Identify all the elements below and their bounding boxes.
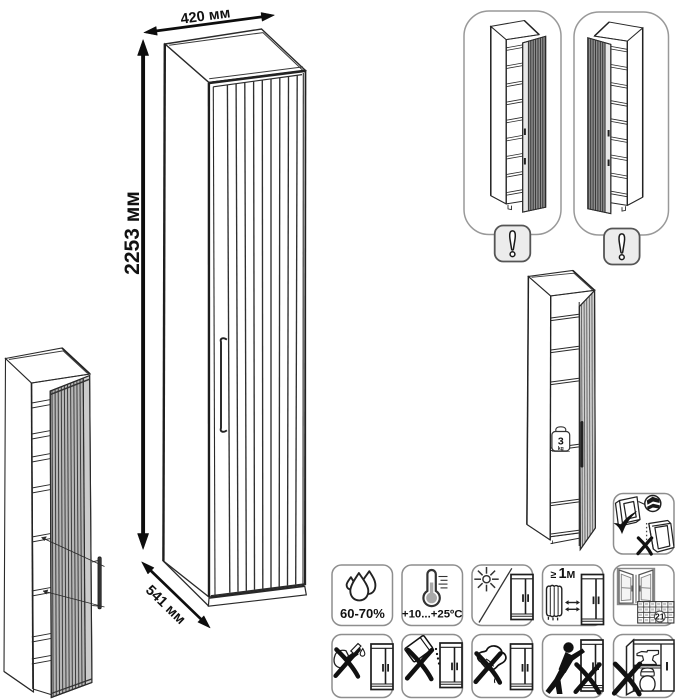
svg-text:1: 1 bbox=[559, 566, 567, 582]
svg-text:≥: ≥ bbox=[551, 569, 557, 581]
svg-text:M: M bbox=[567, 569, 576, 581]
svg-text:kg: kg bbox=[558, 446, 564, 452]
svg-text:21: 21 bbox=[655, 612, 665, 622]
svg-text:2253 мм: 2253 мм bbox=[121, 191, 144, 275]
svg-text:541 мм: 541 мм bbox=[142, 582, 188, 628]
svg-text:+10...+25ºC: +10...+25ºC bbox=[402, 609, 463, 621]
svg-text:60-70%: 60-70% bbox=[340, 606, 385, 621]
svg-text:420 мм: 420 мм bbox=[180, 5, 232, 27]
